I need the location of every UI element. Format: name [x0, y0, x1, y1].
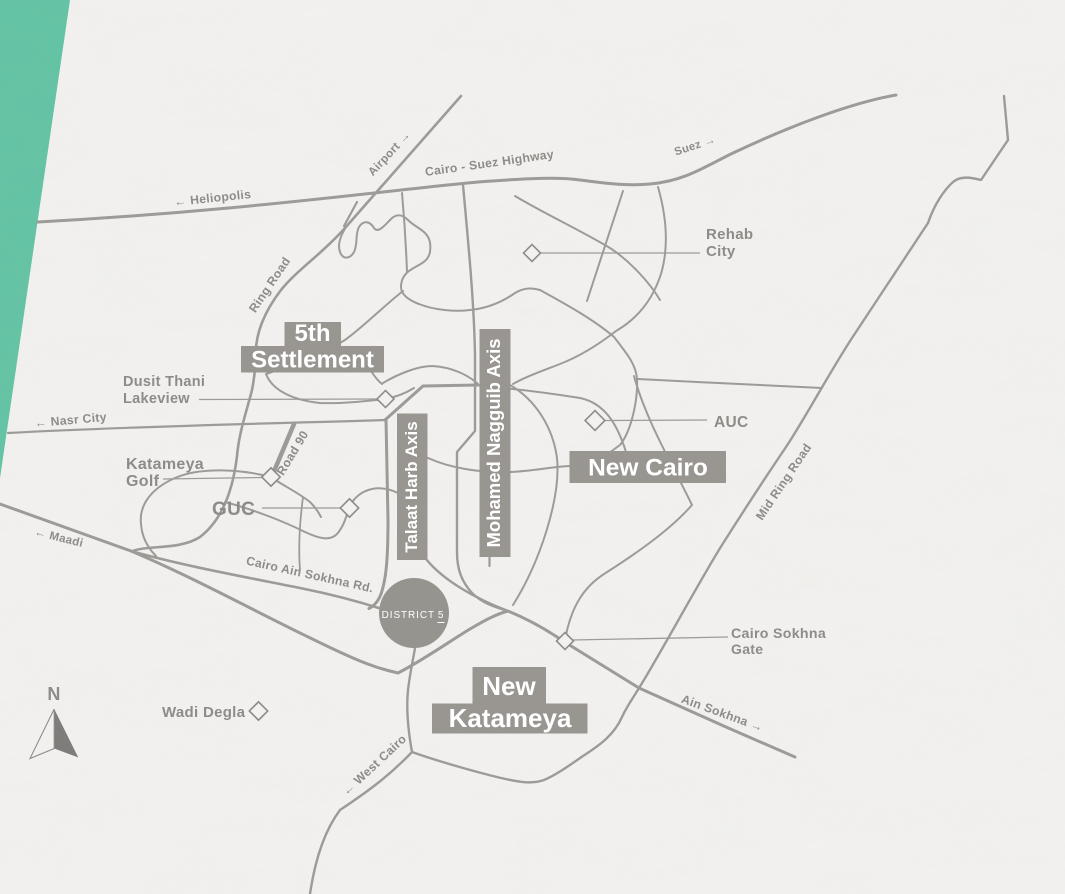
svg-text:DISTRICT 5: DISTRICT 5	[382, 610, 445, 621]
svg-text:New: New	[482, 671, 536, 701]
svg-text:N: N	[47, 684, 60, 704]
svg-text:Mohamed Nagguib Axis: Mohamed Nagguib Axis	[483, 338, 504, 547]
svg-text:Dusit Thani: Dusit Thani	[123, 374, 205, 390]
svg-text:Rehab: Rehab	[706, 226, 753, 243]
svg-text:Golf: Golf	[126, 473, 160, 490]
svg-text:Gate: Gate	[731, 641, 763, 657]
svg-text:Settlement: Settlement	[251, 347, 374, 374]
svg-text:Wadi Degla: Wadi Degla	[162, 704, 246, 721]
svg-text:Lakeview: Lakeview	[123, 391, 190, 407]
svg-text:5th: 5th	[295, 320, 331, 347]
svg-text:Talaat Harb Axis: Talaat Harb Axis	[402, 421, 421, 552]
svg-text:Katameya: Katameya	[126, 456, 204, 473]
svg-text:City: City	[706, 243, 736, 260]
svg-text:AUC: AUC	[714, 414, 748, 431]
svg-text:GUC: GUC	[212, 499, 255, 520]
svg-text:Katameya: Katameya	[449, 703, 572, 733]
svg-text:Cairo Sokhna: Cairo Sokhna	[731, 626, 826, 642]
svg-text:New Cairo: New Cairo	[588, 455, 708, 482]
